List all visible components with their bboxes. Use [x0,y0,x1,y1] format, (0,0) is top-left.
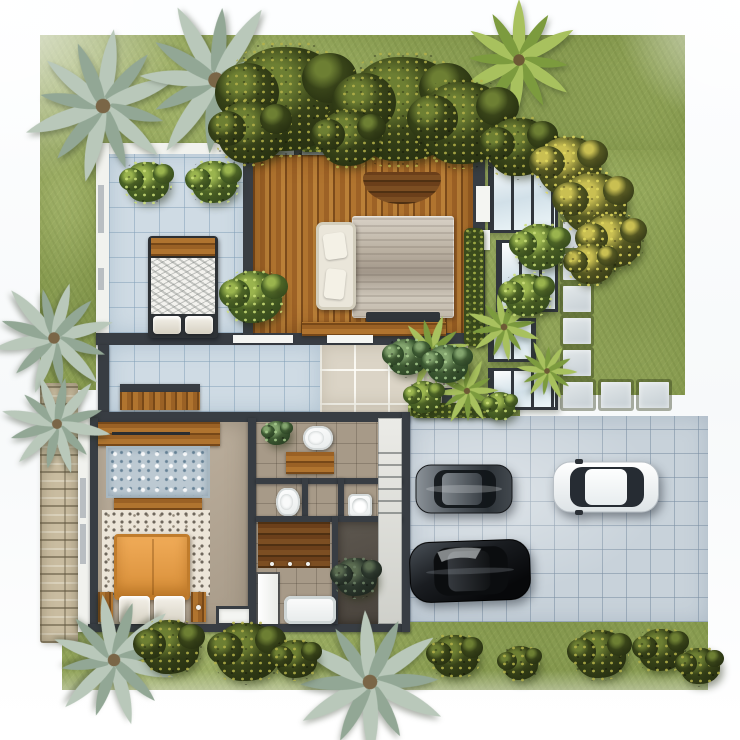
master-bed [352,216,454,318]
window-slit [98,268,104,290]
stepping-paver [563,318,591,344]
hall-bench-back [120,384,200,392]
hedge-row [464,228,484,346]
stepping-paver [639,382,669,408]
bathroom-door [258,574,278,624]
stepping-paver [563,158,591,184]
wood-vanity [258,522,330,568]
orange-bed-pillow [154,596,185,624]
sliding-door-white [327,335,373,343]
coupe-black [407,533,533,609]
stepping-paver [563,222,591,248]
skylight-panel-group [488,155,558,233]
stepping-paver [563,382,593,408]
staircase [378,418,402,624]
skylight-panel-group [496,240,558,312]
guest-bed-pillow [185,316,213,334]
bidet [276,488,300,516]
hall-bench [120,392,200,410]
bathroom-wood-floor [286,452,334,474]
hedge-row [411,403,503,418]
sedan-white [552,457,660,517]
garden-grass-left [40,150,96,390]
wall-left-hall [98,345,109,412]
wall-bedroom-bathroom [248,418,256,624]
stepping-paver [563,350,591,376]
window-slit [80,524,86,564]
wall-left-lower [90,418,98,632]
entry-mat [216,606,252,626]
exterior-wall-white-top [96,143,246,154]
master-bed-footboard [366,312,440,322]
stair-treads [378,448,402,514]
exterior-wall-white-left [96,143,109,345]
wardrobe-handle [112,432,190,435]
bathtub [284,596,336,624]
sliding-door-white [233,335,293,343]
stepping-paver [601,382,631,408]
shelf-decor [268,146,294,155]
window-slit [80,478,86,518]
window-sill [476,186,490,222]
window-slit [98,185,104,233]
hedge-row [300,136,562,152]
skylight-panel-group [488,318,536,362]
master-foot-bench [302,322,446,336]
ornate-rug [106,446,210,498]
guest-bed-pillow [153,316,181,334]
orange-bed [114,534,190,600]
stepping-paver [563,190,591,216]
floor-plan-render [0,0,740,740]
wall-divider-bedrooms [243,150,253,340]
nightstand-left [98,592,113,622]
stepping-paver [563,254,591,280]
orange-bed-pillow [119,596,150,624]
stepping-paver [563,286,591,312]
toilet [303,426,333,450]
stone-path [40,383,78,643]
master-sofa [316,222,356,310]
nightstand-right [191,592,206,622]
rug-wood-runner [114,498,202,510]
sink [348,494,372,518]
guest-bed-duvet [151,258,215,314]
guest-bed-headboard [151,238,215,256]
suv-dark-gray [414,460,514,518]
